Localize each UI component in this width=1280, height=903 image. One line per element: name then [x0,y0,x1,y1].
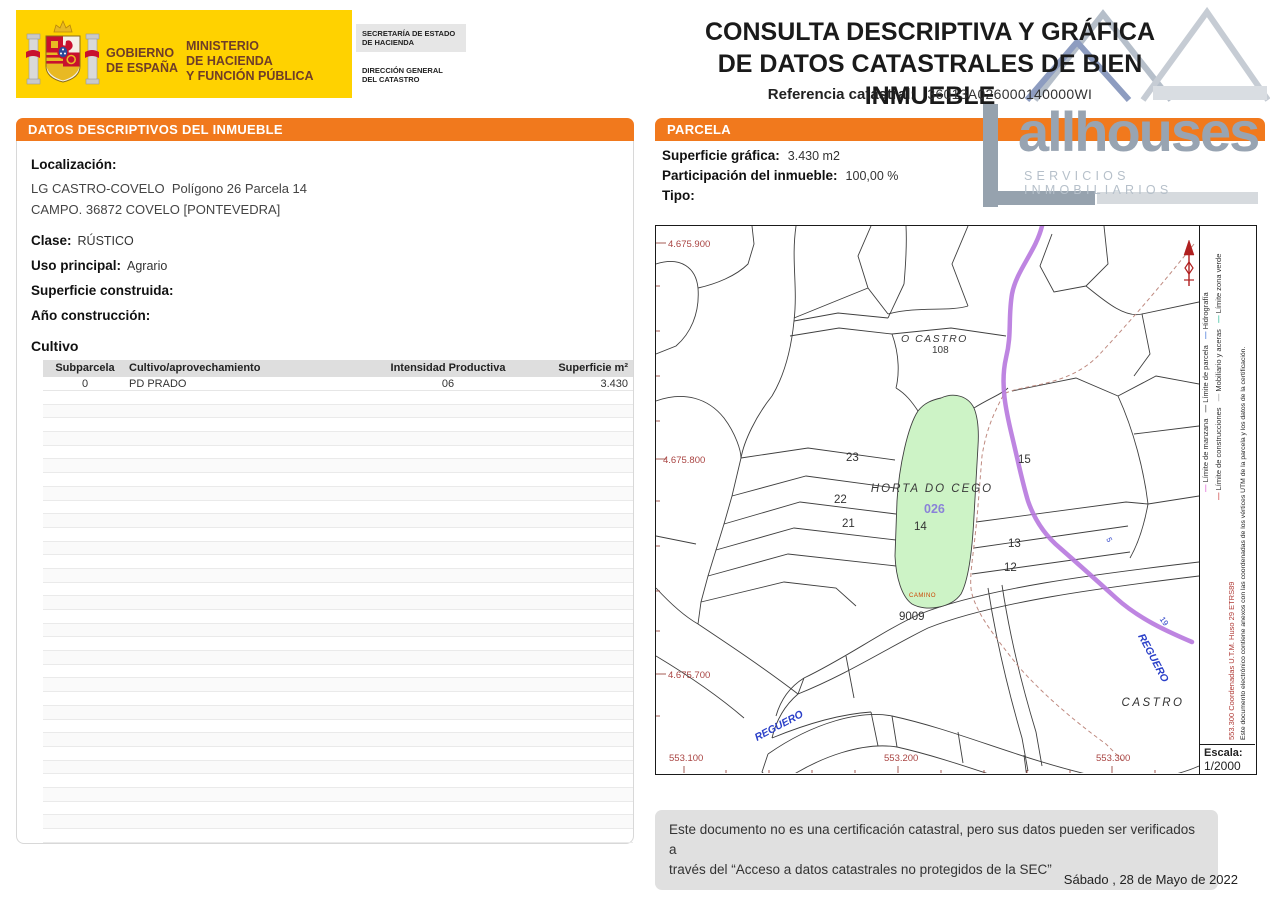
cultivo-table-body: 0PD PRADO063.430 [43,377,633,843]
table-row-empty [43,583,633,597]
coord-x-200: 553.200 [884,753,918,764]
label-parcel-14: 14 [914,521,927,533]
coord-y-800: 4.675.800 [663,455,705,466]
table-row-empty [43,733,633,747]
label-parcel-9009: 9009 [899,611,925,623]
document-date: Sábado , 28 de Mayo de 2022 [1064,872,1238,887]
spain-coat-of-arms-icon [24,18,102,92]
table-row-empty [43,651,633,665]
label-parcel-12: 12 [1004,562,1017,574]
cultivo-title: Cultivo [31,338,633,354]
table-row-empty [43,815,633,829]
label-parcel-22: 22 [834,494,847,506]
anio-construccion-row: Año construcción: [31,307,633,325]
table-row-empty [43,501,633,515]
table-row-empty [43,802,633,816]
table-row-empty [43,555,633,569]
cadastral-map: 4.675.900 4.675.800 4.675.700 553.100 55… [656,226,1199,773]
table-row-empty [43,829,633,843]
cultivo-table-header: Subparcela Cultivo/aprovechamiento Inten… [43,360,633,377]
table-row: 0PD PRADO063.430 [43,377,633,391]
escala-value: 1/2000 [1204,759,1251,773]
label-parcel-23: 23 [846,452,859,464]
clase-row: Clase:RÚSTICO [31,232,633,250]
gobierno-label: GOBIERNO DE ESPAÑA [106,46,178,76]
label-parcel-13: 13 [1008,538,1021,550]
municipal-boundary-dashed [971,244,1194,762]
superficie-grafica-row: Superficie gráfica:3.430 m2 [662,148,840,163]
cadastral-map-svg: 4.675.900 4.675.800 4.675.700 553.100 55… [656,226,1199,773]
legend-item: — Límite zona verde [1214,247,1223,322]
table-row-empty [43,624,633,638]
table-row-empty [43,405,633,419]
map-legend: — Límite de manzana — Límite de parcela … [1200,226,1255,744]
coord-y-700: 4.675.700 [668,670,710,681]
disclaimer-line-1: Este documento no es una certificación c… [669,820,1204,860]
table-row-empty [43,528,633,542]
table-row-empty [43,747,633,761]
coord-x-300: 553.300 [1096,753,1130,764]
escala-box: Escala: 1/2000 [1200,744,1255,774]
table-row-empty [43,774,633,788]
legend-item: — Hidrografía [1201,286,1210,339]
label-parcel-5: 5 [1104,536,1114,544]
label-parcel-15: 15 [1018,454,1031,466]
coord-y-900: 4.675.900 [668,239,710,250]
government-banner: GOBIERNO DE ESPAÑA MINISTERIO DE HACIEND… [16,10,352,98]
participacion-row: Participación del inmueble:100,00 % [662,168,898,183]
coord-x-100: 553.100 [669,753,703,764]
north-arrow-icon [1184,240,1194,286]
label-reguero-e: REGUERO [1135,632,1171,685]
table-row-empty [43,487,633,501]
escala-label: Escala: [1204,747,1251,759]
table-row-empty [43,706,633,720]
label-reguero-sw: REGUERO [753,708,806,744]
legend-item: — Límite de manzana [1201,412,1210,492]
datos-descriptivos-header: DATOS DESCRIPTIVOS DEL INMUEBLE [16,118,634,141]
table-row-empty [43,432,633,446]
allhouses-logo: allhouses [1018,102,1258,162]
table-row-empty [43,665,633,679]
table-row-empty [43,446,633,460]
label-parcel-code-026: 026 [924,502,945,516]
stream-path [1004,226,1192,642]
table-row-empty [43,637,633,651]
legend-line-1: — Límite de manzana — Límite de parcela … [1202,230,1210,492]
table-row-empty [43,788,633,802]
uso-principal-row: Uso principal:Agrario [31,257,633,275]
legend-line-2: — Límite de construcciones — Mobiliario … [1215,228,1223,500]
superficie-construida-row: Superficie construida: [31,282,633,300]
legend-item: — Límite de parcela [1201,339,1210,412]
legend-item: — Límite de construcciones [1214,401,1223,500]
map-legend-strip: — Límite de manzana — Límite de parcela … [1199,226,1255,774]
cultivo-table: Subparcela Cultivo/aprovechamiento Inten… [43,360,633,843]
table-row-empty [43,610,633,624]
cadastral-document-page: GOBIERNO DE ESPAÑA MINISTERIO DE HACIEND… [0,0,1280,903]
datos-descriptivos-panel: Localización: LG CASTRO-COVELO Polígono … [16,141,634,844]
direccion-general-catastro-label: DIRECCIÓN GENERAL DEL CATASTRO [362,66,443,84]
ministerio-label: MINISTERIO DE HACIENDA Y FUNCIÓN PÚBLICA [186,39,314,84]
label-o-castro: O CASTRO [901,333,968,345]
table-row-empty [43,418,633,432]
table-row-empty [43,473,633,487]
table-row-empty [43,678,633,692]
table-row-empty [43,459,633,473]
label-parcel-21: 21 [842,518,855,530]
label-camino: CAMINO [909,593,936,599]
address-line-1: LG CASTRO-COVELO Polígono 26 Parcela 14 [31,181,633,196]
tipo-row: Tipo: [662,188,703,203]
referencia-catastral-label: Referencia catastral: [768,86,916,103]
cadastral-map-frame: 4.675.900 4.675.800 4.675.700 553.100 55… [655,225,1257,775]
table-row-empty [43,514,633,528]
table-row-empty [43,391,633,405]
label-108: 108 [932,345,949,356]
legend-item: — Mobiliario y aceras [1214,323,1223,401]
allhouses-tagline: SERVICIOS INMOBILIARIOS [1024,169,1280,197]
localizacion-label: Localización: [31,157,633,172]
label-horta-do-cego: HORTA DO CEGO [871,483,993,495]
table-row-empty [43,720,633,734]
legend-utm-note: 553.300 Coordenadas U.T.M. Huso 29 ETRS8… [1228,488,1236,740]
table-row-empty [43,596,633,610]
table-row-empty [43,692,633,706]
table-row-empty [43,542,633,556]
table-row-empty [43,569,633,583]
legend-certification-note: Este documento electrónico contiene anex… [1241,228,1248,740]
secretaria-estado-label: SECRETARÍA DE ESTADO DE HACIENDA [356,24,466,52]
label-castro: CASTRO [1122,697,1185,709]
table-row-empty [43,761,633,775]
address-line-2: CAMPO. 36872 COVELO [PONTEVEDRA] [31,202,633,217]
